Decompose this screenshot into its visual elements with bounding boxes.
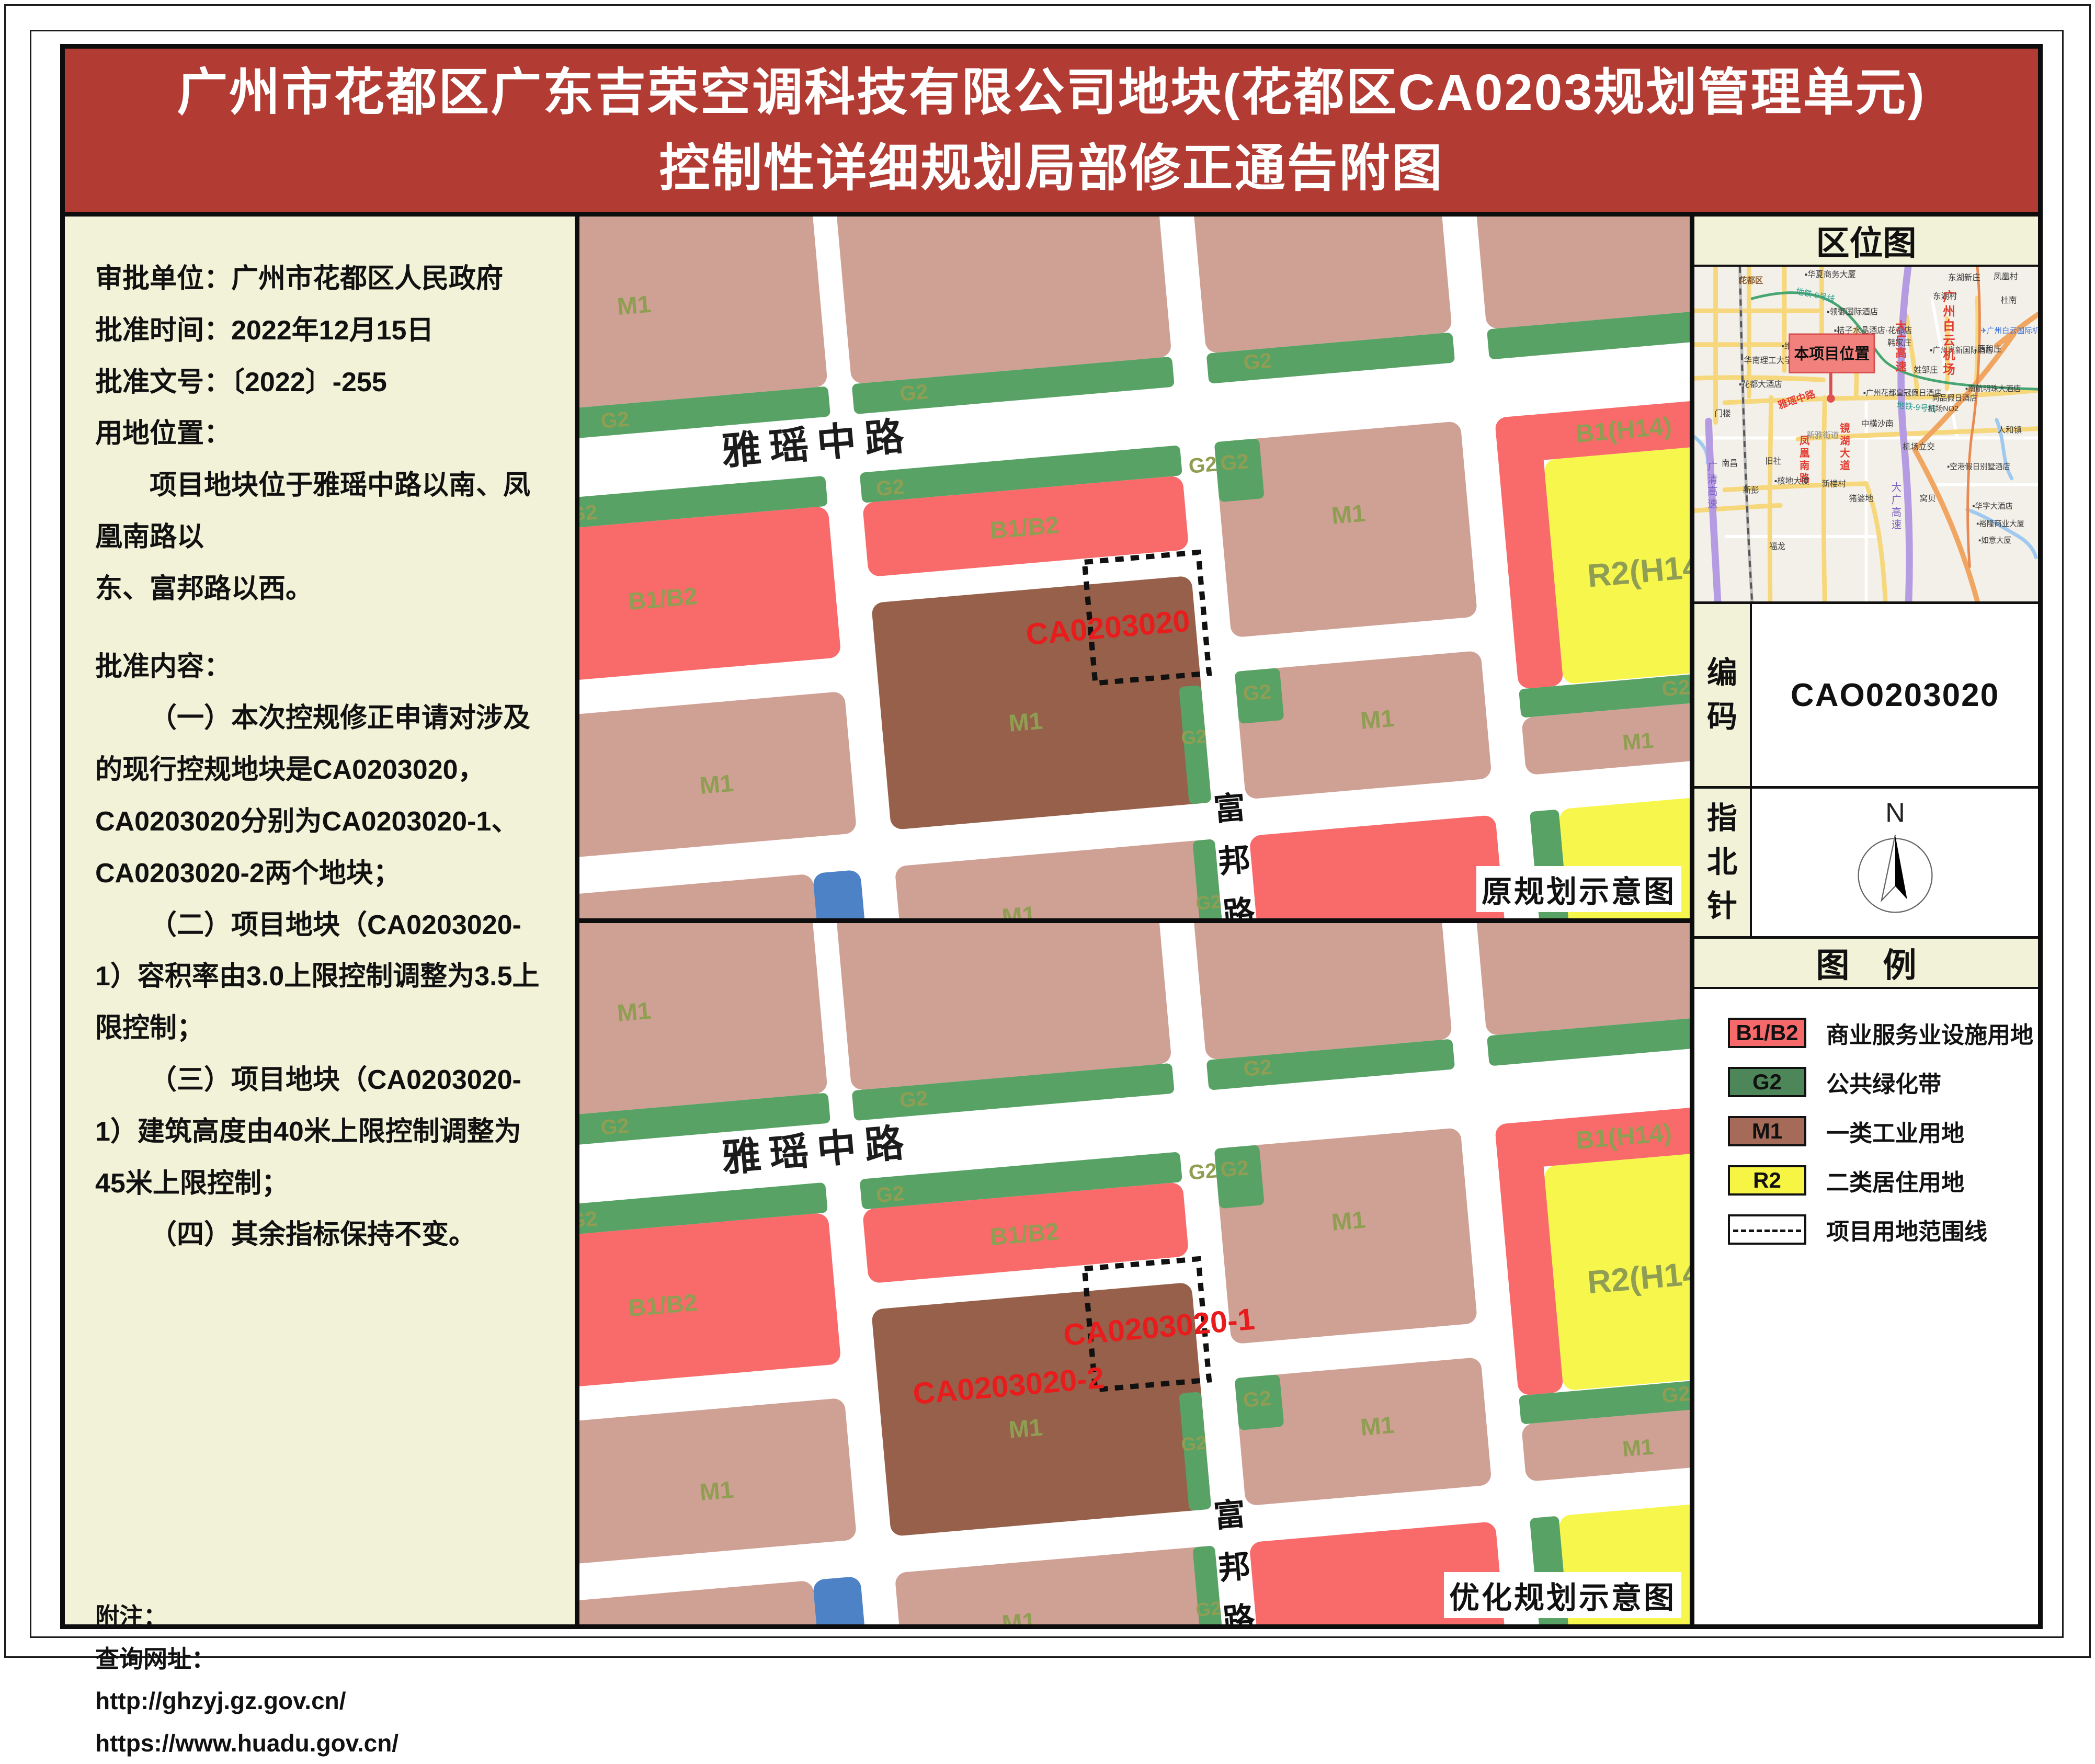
zone-label: G2 (1180, 1431, 1208, 1455)
zone-label: G2 (1242, 679, 1272, 705)
approval-item: （二）项目地块（CA0203020-1）容积率由3.0上限控制调整为3.5上限控… (95, 900, 549, 1054)
optimized-plan-map: M1G2G2G2G2G2B1/B2B1/B2M1M1U1M1G2G2G2M1G2… (579, 923, 1690, 1625)
legend-desc: 二类居住用地 (1826, 1164, 1964, 1197)
code-row: 编码 CAO0203020 (1694, 604, 2038, 789)
zone-label: M1 (1330, 499, 1367, 529)
info-panel: 审批单位：广州市花都区人民政府批准时间：2022年12月15日批准文号：〔202… (65, 217, 579, 1624)
minimap-label: 广清高速 (1707, 461, 1717, 510)
code-value: CAO0203020 (1752, 604, 2038, 786)
zone-label: G2 (875, 474, 905, 500)
legend-row: B1/B2商业服务业设施用地 (1728, 1016, 2038, 1050)
minimap-label: 新楼村 (1821, 480, 1846, 489)
zone-label: M1 (1008, 1413, 1044, 1443)
minimap-label: 杜南 (2001, 295, 2017, 305)
minimap-label: 南昌 (1722, 459, 1738, 468)
minimap-label: 西和庄 (1977, 345, 2001, 354)
zone-label: G2 (600, 407, 630, 433)
zone-label: G2 (898, 1086, 929, 1112)
approval-item: （四）其余指标保持不变。 (95, 1209, 549, 1261)
minimap-label: ▪花都大酒店 (1739, 380, 1782, 389)
parcel-b1 (579, 1212, 841, 1392)
info-line: 用地位置： (95, 408, 549, 460)
minimap-label: 新雅街道 (1806, 430, 1839, 440)
zone-label: G2 (1243, 348, 1273, 374)
parcel-m1 (579, 217, 828, 415)
legend-row: M1一类工业用地 (1728, 1114, 2038, 1148)
zone-label: G2 (875, 1181, 905, 1207)
minimap-label: 旧社 (1765, 457, 1781, 466)
zone-label: M1 (699, 1476, 735, 1506)
minimap-label: ▪华字大酒店 (1972, 502, 2013, 510)
approval-item: （三）项目地块（CA0203020-1）建筑高度由40米上限控制调整为45米上限… (95, 1054, 549, 1209)
minimap-label: 猪婆地 (1849, 494, 1874, 503)
minimap-label: 姓邹庄 (1914, 365, 1938, 374)
info-line: 批准文号：〔2022〕-255 (95, 357, 549, 408)
legend-swatch: M1 (1728, 1116, 1806, 1146)
note-line: https://www.huadu.gov.cn/ (95, 1722, 549, 1764)
parcel-m1 (1187, 923, 1452, 1060)
zone-label: G2 (1242, 1385, 1272, 1412)
legend-swatch: G2 (1728, 1067, 1806, 1097)
minimap-label: 花都区 (1739, 276, 1763, 286)
road-label-side: 邦 (1217, 841, 1252, 879)
zone-label: G2 (1188, 1158, 1218, 1184)
zone-label: M1 (1359, 704, 1395, 734)
minimap-label: 华南理工大学 (1744, 356, 1793, 365)
location-minimap-svg: 花都区▪华夏商务大厦地铁-9号线▪领御国际酒店▪桔子水晶酒店·花都店▪维也纳酒店… (1694, 267, 2038, 601)
location-map-title: 区位图 (1694, 217, 2038, 267)
minimap-label: ▪南航明珠大酒店 (1965, 384, 2021, 393)
notes: 附注：查询网址：http://ghzyj.gz.gov.cn/https://w… (95, 1596, 549, 1764)
parcel-m1 (1187, 217, 1452, 354)
legend-desc: 项目用地范围线 (1826, 1213, 1987, 1246)
legend-row: 项目用地范围线 (1728, 1213, 2038, 1246)
info-line: 东、富邦路以西。 (95, 563, 549, 615)
legend: B1/B2商业服务业设施用地G2公共绿化带M1一类工业用地R2二类居住用地项目用… (1694, 989, 2038, 1624)
note-line: 附注： (95, 1596, 549, 1638)
info-line: 项目地块位于雅瑶中路以南、凤凰南路以 (95, 460, 549, 563)
right-panel: 区位图 (1690, 217, 2038, 1624)
legend-title: 图 例 (1694, 939, 2038, 989)
zone-label: G2 (1180, 725, 1208, 749)
minimap-label: ▪空港假日别墅酒店 (1947, 462, 2010, 471)
project-location-label: 本项目位置 (1794, 345, 1870, 362)
original-map-caption: 原规划示意图 (1476, 866, 1681, 912)
zone-label: G2 (579, 500, 598, 526)
zone-label: G2 (1188, 452, 1218, 478)
parcel-m1 (1467, 217, 1690, 329)
original-plan-map: M1G2G2G2G2G2B1/B2B1/B2M1M1U1M1G2G2G2M1G2… (579, 217, 1690, 923)
legend-desc: 一类工业用地 (1826, 1114, 1964, 1148)
zone-label: G2 (1243, 1054, 1273, 1080)
minimap-label: ▪如意大厦 (1978, 536, 2011, 545)
road-label-side: 富 (1212, 1496, 1247, 1533)
legend-desc: 公共绿化带 (1826, 1065, 1941, 1099)
zone-label: M1 (1008, 707, 1044, 737)
zone-label: G2 (600, 1113, 630, 1139)
minimap-label: 机场立交 (1903, 442, 1935, 451)
info-line: 审批单位：广州市花都区人民政府 (95, 253, 549, 305)
approval-items: （一）本次控规修正申请对涉及的现行控规地块是CA0203020，CA020302… (95, 692, 549, 1261)
planning-notice: { "title": { "line1": "广州市花都区广东吉荣空调科技有限公… (0, 0, 2095, 1662)
minimap-label: ▪领御国际酒店 (1827, 307, 1878, 316)
plan-maps: M1G2G2G2G2G2B1/B2B1/B2M1M1U1M1G2G2G2M1G2… (579, 217, 1690, 1624)
zone-label: G2 (1661, 675, 1690, 701)
zone-label: M1 (1330, 1205, 1367, 1235)
minimap-label: 窝贝 (1920, 494, 1936, 503)
title-line-2: 控制性详细规划局部修正通告附图 (659, 130, 1444, 207)
minimap-label: 大广高速 (1896, 320, 1907, 373)
zone-label: M1 (699, 769, 735, 799)
main-area: 审批单位：广州市花都区人民政府批准时间：2022年12月15日批准文号：〔202… (65, 217, 2038, 1624)
info-line: 批准时间：2022年12月15日 (95, 305, 549, 357)
zone-label: M1 (616, 290, 652, 320)
minimap-label: ▪广州花都皇冠假日酒店 (1863, 389, 1942, 397)
minimap-label: 福龙 (1769, 542, 1785, 551)
minimap-label: 中横沙南 (1861, 419, 1894, 428)
title-line-1: 广州市花都区广东吉荣空调科技有限公司地块(花都区CA0203规划管理单元) (177, 54, 1926, 131)
legend-swatch: B1/B2 (1728, 1018, 1806, 1048)
minimap-label: ✈广州白云国际机场 (1980, 326, 2038, 335)
compass-cell: N (1752, 789, 2038, 936)
note-line: 查询网址： (95, 1638, 549, 1680)
minimap-label: ▪华夏商务大厦 (1805, 270, 1856, 279)
location-minimap: 花都区▪华夏商务大厦地铁-9号线▪领御国际酒店▪桔子水晶酒店·花都店▪维也纳酒店… (1694, 267, 2038, 604)
road-label-side: 邦 (1217, 1548, 1252, 1586)
parcel-m1 (1467, 923, 1690, 1036)
minimap-label: 机场NO2 (1928, 404, 1959, 413)
minimap-label: 大广高速 (1892, 482, 1902, 531)
legend-swatch: R2 (1728, 1165, 1806, 1196)
zone-label: G2 (898, 379, 929, 405)
svg-text:N: N (1885, 798, 1905, 828)
original-plan-map-svg: M1G2G2G2G2G2B1/B2B1/B2M1M1U1M1G2G2G2M1G2… (579, 217, 1690, 918)
zone-label: G2 (1195, 1597, 1222, 1620)
parcel-b1 (579, 506, 841, 685)
minimap-label: ▪核地大厦 (1774, 476, 1810, 486)
legend-row: G2公共绿化带 (1728, 1065, 2038, 1099)
approval-item: （一）本次控规修正申请对涉及的现行控规地块是CA0203020，CA020302… (95, 692, 549, 899)
zone-label: M1 (1001, 901, 1037, 918)
road-label-side: 富 (1212, 789, 1247, 827)
minimap-label: 新彭 (1743, 485, 1759, 495)
legend-desc: 商业服务业设施用地 (1826, 1016, 2033, 1050)
info-lines: 审批单位：广州市花都区人民政府批准时间：2022年12月15日批准文号：〔202… (95, 253, 549, 615)
zone-label: G2 (579, 1206, 598, 1232)
north-arrow-icon: N (1835, 797, 1955, 928)
minimap-label: ▪裕隆商业大厦 (1976, 519, 2024, 528)
zone-label: M1 (1621, 728, 1654, 755)
zone-label: M1 (1621, 1434, 1654, 1461)
approval-header: 批准内容： (95, 641, 549, 693)
note-line: http://ghzyj.gz.gov.cn/ (95, 1680, 549, 1722)
optimized-map-caption: 优化规划示意图 (1444, 1572, 1681, 1618)
minimap-label: 尚品假日酒店 (1932, 394, 1977, 403)
minimap-label: 东湖新庄 (1948, 273, 1980, 282)
zone-label: G2 (1195, 891, 1222, 914)
legend-dashed-swatch (1728, 1214, 1806, 1245)
zone-label: M1 (1359, 1410, 1395, 1440)
optimized-plan-map-svg: M1G2G2G2G2G2B1/B2B1/B2M1M1U1M1G2G2G2M1G2… (579, 923, 1690, 1625)
zone-label: G2 (1220, 449, 1250, 475)
compass-label: 指北针 (1694, 789, 1752, 936)
zone-label: M1 (616, 997, 652, 1027)
minimap-label: 凤凰村 (1994, 272, 2018, 281)
code-label: 编码 (1694, 604, 1752, 786)
parcel-m1 (579, 923, 828, 1122)
zone-label: G2 (1220, 1155, 1250, 1181)
content-frame: 广州市花都区广东吉荣空调科技有限公司地块(花都区CA0203规划管理单元) 控制… (60, 44, 2043, 1629)
compass-row: 指北针 N (1694, 789, 2038, 939)
legend-row: R2二类居住用地 (1728, 1164, 2038, 1197)
parcel-m1 (833, 217, 1172, 384)
zone-label: G2 (1661, 1381, 1690, 1407)
road-label-side: 路 (1221, 1600, 1256, 1624)
parcel-m1 (833, 923, 1172, 1090)
page-title: 广州市花都区广东吉荣空调科技有限公司地块(花都区CA0203规划管理单元) 控制… (65, 49, 2038, 217)
zone-label: M1 (1001, 1607, 1037, 1624)
minimap-label: 门楼 (1715, 409, 1731, 418)
road-label-side: 路 (1221, 894, 1256, 918)
minimap-label: 人和镇 (1998, 425, 2022, 435)
